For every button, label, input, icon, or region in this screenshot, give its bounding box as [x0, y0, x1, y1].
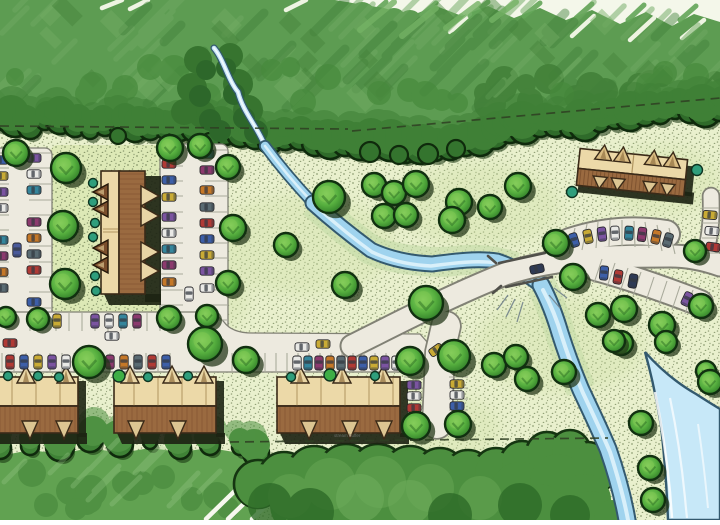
svg-text:stream buffer: stream buffer	[334, 433, 361, 438]
